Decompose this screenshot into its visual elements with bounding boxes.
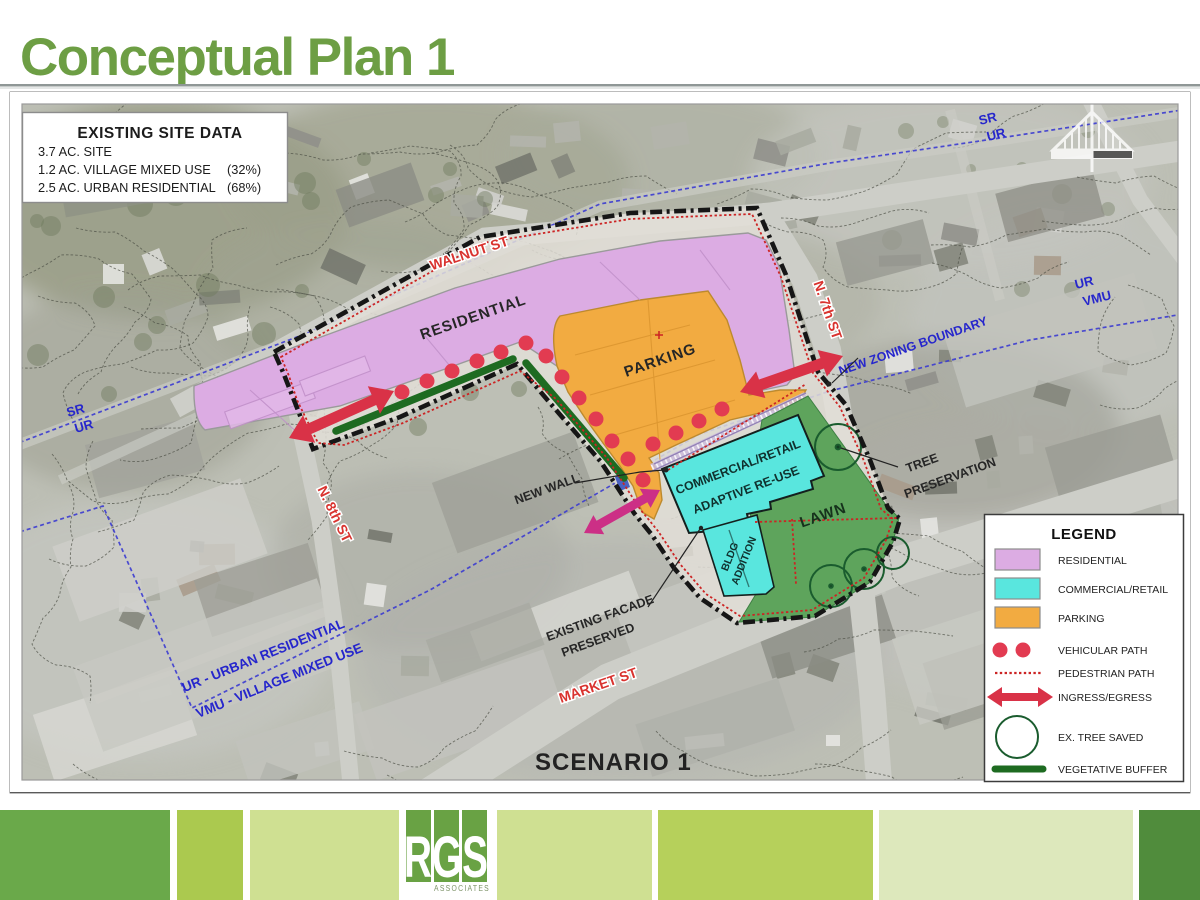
svg-text:PARKING: PARKING [1058, 613, 1104, 625]
svg-text:PEDESTRIAN PATH: PEDESTRIAN PATH [1058, 668, 1154, 680]
svg-text:VEGETATIVE BUFFER: VEGETATIVE BUFFER [1058, 764, 1168, 776]
svg-text:INGRESS/EGRESS: INGRESS/EGRESS [1058, 692, 1152, 704]
svg-text:(32%): (32%) [227, 162, 261, 177]
svg-text:LEGEND: LEGEND [1051, 526, 1117, 543]
svg-text:3.7 AC. SITE: 3.7 AC. SITE [38, 144, 112, 159]
svg-text:Conceptual Plan 1: Conceptual Plan 1 [20, 28, 454, 87]
svg-text:2.5 AC. URBAN RESIDENTIAL: 2.5 AC. URBAN RESIDENTIAL [38, 180, 216, 195]
svg-text:EX. TREE SAVED: EX. TREE SAVED [1058, 732, 1144, 744]
svg-text:(68%): (68%) [227, 180, 261, 195]
svg-text:COMMERCIAL/RETAIL: COMMERCIAL/RETAIL [1058, 584, 1168, 596]
svg-text:EXISTING SITE DATA: EXISTING SITE DATA [77, 125, 242, 142]
svg-text:ASSOCIATES: ASSOCIATES [434, 884, 490, 893]
svg-text:RGS: RGS [404, 825, 488, 890]
svg-text:1.2 AC. VILLAGE MIXED USE: 1.2 AC. VILLAGE MIXED USE [38, 162, 211, 177]
svg-text:VEHICULAR PATH: VEHICULAR PATH [1058, 645, 1147, 657]
svg-text:SCENARIO 1: SCENARIO 1 [535, 749, 692, 776]
svg-text:RESIDENTIAL: RESIDENTIAL [1058, 555, 1127, 567]
